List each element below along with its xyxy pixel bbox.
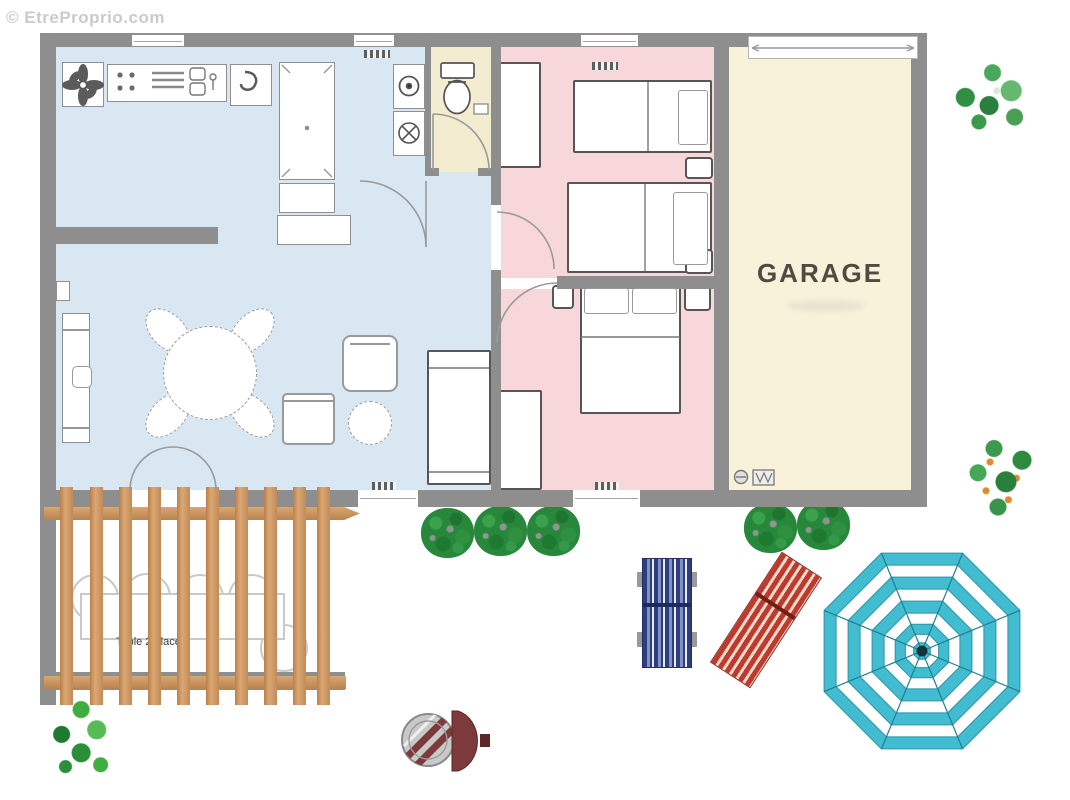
desk-chair xyxy=(72,366,92,388)
bush-icon xyxy=(421,508,474,558)
wall-bathroom-bottom-1 xyxy=(425,168,439,176)
wall-right xyxy=(911,33,927,507)
lounger-armrest xyxy=(637,632,642,647)
bbq-knob xyxy=(480,734,490,747)
pergola-slat xyxy=(206,487,219,705)
garage-smudge xyxy=(787,300,865,312)
pergola-slat xyxy=(119,487,132,705)
wall-left xyxy=(40,33,56,705)
window-bedroom1 xyxy=(581,35,638,46)
pergola-slat xyxy=(148,487,161,705)
window-kitchen xyxy=(132,35,184,46)
vent-bedroom2 xyxy=(595,482,619,490)
sofa xyxy=(282,393,335,445)
window-bedroom2-south xyxy=(573,492,640,504)
wall-bedrooms-left-2 xyxy=(491,270,501,490)
garage-door xyxy=(748,36,918,59)
tree-icon xyxy=(950,58,1035,140)
tall-cabinet xyxy=(279,62,335,180)
bush-icon xyxy=(527,506,580,556)
pillow-bed2 xyxy=(673,192,708,265)
wall-garage-left xyxy=(714,33,729,507)
garage-label: GARAGE xyxy=(729,258,911,289)
vent-living xyxy=(372,482,396,490)
watermark: © EtreProprio.com xyxy=(6,8,165,28)
pergola-slat xyxy=(235,487,248,705)
wall-bottom-3 xyxy=(418,490,573,507)
washing-machine xyxy=(393,64,425,109)
pillow-right xyxy=(632,288,677,314)
vent-1 xyxy=(364,50,390,58)
dryer xyxy=(393,111,425,156)
lounger-crossbar xyxy=(643,603,691,607)
bush-icon xyxy=(744,503,797,553)
wall-bottom-4 xyxy=(640,490,927,507)
wardrobe-bedroom2 xyxy=(497,390,542,490)
wall-console xyxy=(56,281,70,301)
lounger-armrest xyxy=(637,572,642,587)
sun-lounger-red xyxy=(710,552,822,689)
wall-kitchen-stub xyxy=(56,227,218,244)
bush-icon xyxy=(797,500,850,550)
wall-bathroom-left xyxy=(425,47,431,176)
orange-tree-icon xyxy=(962,435,1042,525)
sun-lounger-blue xyxy=(642,558,692,668)
cooktop-unit xyxy=(62,62,104,107)
pergola-slat xyxy=(60,487,73,705)
pillow-bed1 xyxy=(678,90,708,145)
guest-bed xyxy=(427,350,491,485)
pergola-slat xyxy=(293,487,306,705)
cabinet-low-2 xyxy=(277,215,351,245)
pergola-slat xyxy=(264,487,277,705)
wall-bedrooms-left-1 xyxy=(491,47,501,205)
window-living-south xyxy=(358,492,418,504)
round-dining-table xyxy=(163,326,257,420)
kitchen-unit xyxy=(230,64,272,106)
pergola-slat xyxy=(317,487,330,705)
floor-plan: © EtreProprio.com GARAGE xyxy=(0,0,1070,800)
pillow-left xyxy=(584,288,629,314)
lounger-crossbar xyxy=(755,592,796,620)
bbq-icon xyxy=(402,710,490,771)
lounger-armrest xyxy=(692,572,697,587)
wardrobe-bedroom1 xyxy=(497,62,541,168)
cabinet-low-1 xyxy=(279,183,335,213)
pergola-slat xyxy=(90,487,103,705)
window-hall xyxy=(354,35,394,46)
armchair xyxy=(342,335,398,392)
side-table xyxy=(348,401,392,445)
tree-icon xyxy=(46,693,124,785)
vent-bedroom1 xyxy=(592,62,618,70)
french-door-opening xyxy=(128,490,218,507)
umbrella-icon xyxy=(824,553,1020,749)
bush-icon xyxy=(474,506,527,556)
lounger-armrest xyxy=(692,632,697,647)
bathroom xyxy=(431,47,491,172)
pergola-slat xyxy=(177,487,190,705)
kitchen-counter-sink xyxy=(107,64,227,102)
nightstand-1 xyxy=(685,157,713,179)
